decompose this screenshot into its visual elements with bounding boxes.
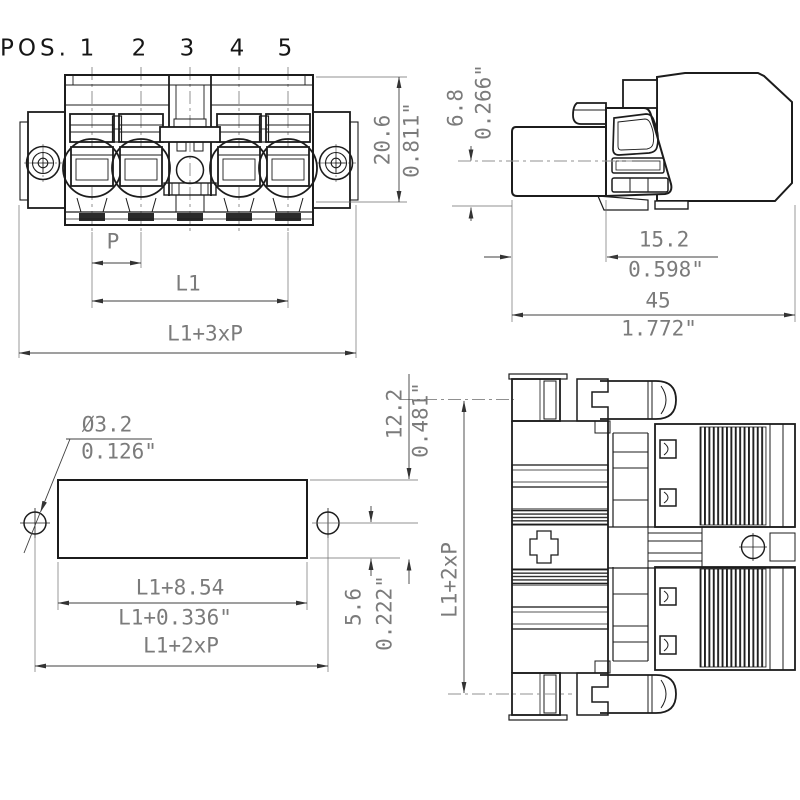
dim-side-offset-in: 0.266": [474, 64, 495, 140]
cutout-drawing: [20, 480, 339, 558]
dim-front-height-in: 0.811": [402, 102, 423, 178]
pos-label: POS.: [0, 38, 70, 61]
dim-cutout-height-in: 0.481": [411, 382, 432, 458]
dim-edge-offset-mm: 5.6: [344, 588, 365, 626]
drawing-sheet: POS. 1 2 3 4 5 P L1 L1+3xP 20.6 0.811" 6…: [0, 0, 800, 800]
dim-total-width-label: L1+3xP: [167, 324, 243, 345]
dim-side-length-mm: 45: [645, 291, 670, 312]
dim-side-depth-mm: 15.2: [639, 230, 690, 251]
dim-l1-label: L1: [175, 274, 200, 295]
dim-edge-offset-in: 0.222": [375, 575, 396, 651]
dim-pitch-label: P: [107, 232, 120, 253]
dim-hole-dia-in: 0.126": [81, 442, 157, 463]
dim-cutout-length-in: L1+0.336": [118, 608, 232, 629]
top-view-drawing: [509, 374, 795, 720]
dim-hole-dia-mm: Ø3.2: [82, 415, 133, 436]
pos-number-2: 2: [132, 38, 151, 61]
dim-cutout-length-mm: L1+8.54: [136, 578, 225, 599]
dim-side-depth-in: 0.598": [628, 260, 704, 281]
dim-cutout-height-mm: 12.2: [385, 389, 406, 440]
dim-side-offset-mm: 6.8: [446, 89, 467, 127]
pos-number-5: 5: [278, 38, 297, 61]
side-view-drawing: [458, 73, 792, 210]
pos-number-1: 1: [80, 38, 99, 61]
front-view-drawing: [20, 67, 358, 232]
pos-number-4: 4: [230, 38, 249, 61]
dim-top-height-label: L1+2xP: [440, 542, 461, 618]
pos-number-3: 3: [180, 38, 199, 61]
dim-front-height-mm: 20.6: [373, 115, 394, 166]
dim-hole-spacing-label: L1+2xP: [143, 636, 219, 657]
dim-side-length-in: 1.772": [621, 319, 697, 340]
